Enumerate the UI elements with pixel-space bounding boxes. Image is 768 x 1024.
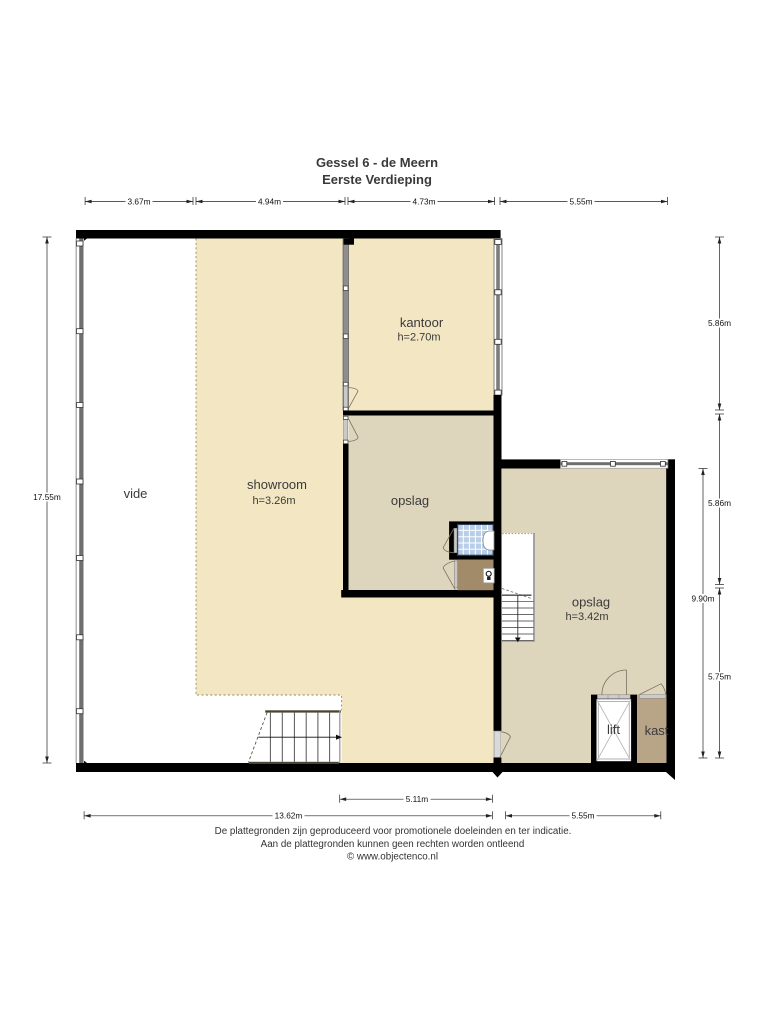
svg-text:opslag: opslag — [572, 595, 610, 610]
svg-text:5.75m: 5.75m — [708, 671, 731, 681]
svg-text:3.67m: 3.67m — [127, 196, 150, 206]
svg-text:De plattegronden zijn geproduc: De plattegronden zijn geproduceerd voor … — [215, 826, 572, 837]
svg-text:9.90m: 9.90m — [691, 593, 714, 603]
svg-text:h=2.70m: h=2.70m — [397, 332, 440, 344]
svg-text:vide: vide — [124, 486, 148, 501]
svg-text:showroom: showroom — [247, 477, 307, 492]
svg-text:h=3.26m: h=3.26m — [252, 495, 295, 507]
svg-text:5.11m: 5.11m — [406, 794, 429, 804]
svg-text:h=3.42m: h=3.42m — [565, 611, 608, 623]
svg-text:13.62m: 13.62m — [275, 811, 303, 821]
svg-text:opslag: opslag — [391, 493, 429, 508]
svg-text:4.73m: 4.73m — [412, 196, 435, 206]
svg-text:5.86m: 5.86m — [708, 318, 731, 328]
svg-text:Eerste Verdieping: Eerste Verdieping — [322, 172, 432, 187]
svg-text:kast: kast — [645, 723, 669, 738]
svg-text:5.55m: 5.55m — [571, 811, 594, 821]
svg-text:kantoor: kantoor — [400, 315, 444, 330]
svg-text:5.55m: 5.55m — [569, 196, 592, 206]
svg-text:4.94m: 4.94m — [258, 196, 281, 206]
svg-text:5.86m: 5.86m — [708, 498, 731, 508]
svg-text:lift: lift — [607, 722, 620, 737]
svg-text:Gessel 6 - de Meern: Gessel 6 - de Meern — [316, 155, 438, 170]
svg-text:Aan de plattegronden kunnen ge: Aan de plattegronden kunnen geen rechten… — [261, 839, 525, 850]
svg-text:© www.objectenco.nl: © www.objectenco.nl — [347, 852, 438, 863]
svg-text:17.55m: 17.55m — [33, 492, 61, 502]
